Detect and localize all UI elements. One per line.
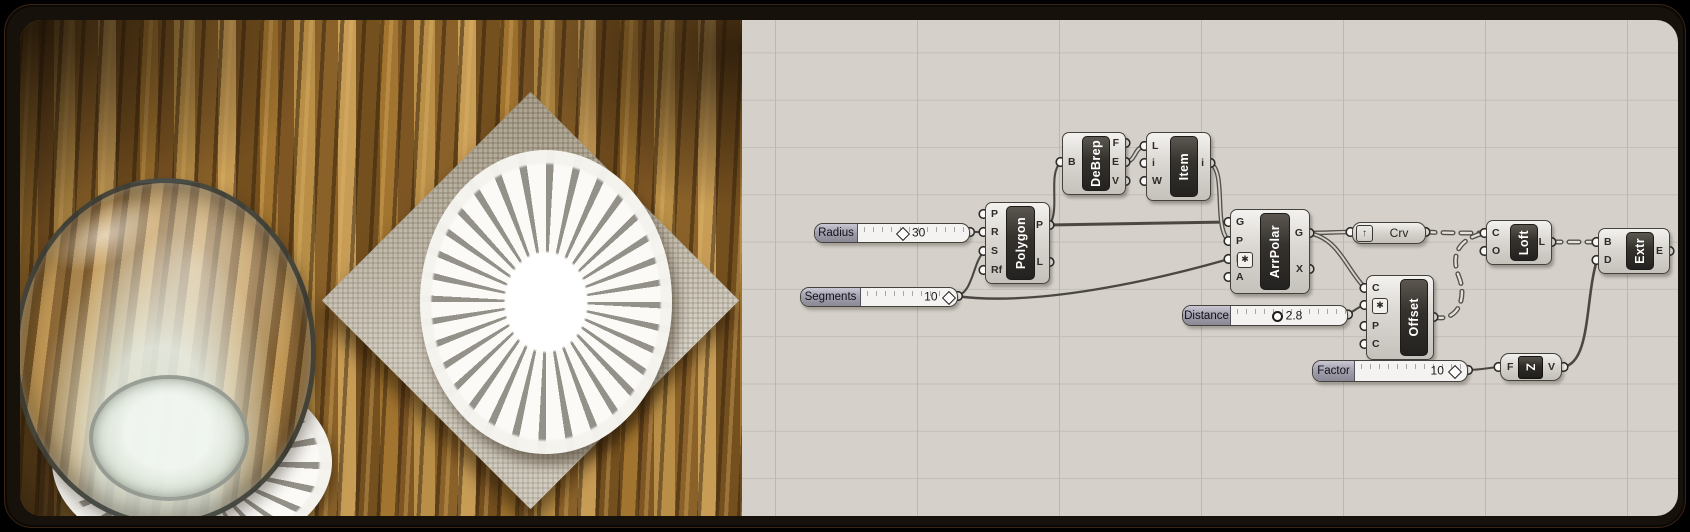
slider-track[interactable]: 2.8	[1231, 306, 1347, 325]
port-out-V[interactable]: V	[1548, 361, 1555, 373]
port-in-C[interactable]: C	[1372, 339, 1380, 350]
port-in-W[interactable]: W	[1152, 176, 1162, 187]
component-debrep[interactable]: DeBrepBFEV	[1062, 132, 1126, 195]
component-title-bar: Item	[1170, 136, 1198, 197]
port-out-E[interactable]: E	[1656, 246, 1663, 257]
component-item[interactable]: ItemLiWi	[1146, 132, 1211, 201]
slider-label: Radius	[815, 224, 858, 242]
component-title: Item	[1177, 153, 1191, 180]
port-in-P[interactable]: P	[1372, 321, 1379, 332]
port-out-G[interactable]: G	[1295, 228, 1303, 239]
port-in-G[interactable]: G	[1236, 217, 1244, 228]
component-title: Polygon	[1014, 217, 1028, 269]
port-in-O[interactable]: O	[1492, 246, 1500, 257]
slider-track[interactable]: 10	[861, 288, 957, 306]
component-polygon[interactable]: PolygonPRSRfPL	[985, 202, 1050, 284]
port-in-F[interactable]: F	[1507, 361, 1513, 373]
input-modifier-icon: ✱	[1237, 252, 1253, 268]
port-in-Rf[interactable]: Rf	[991, 265, 1002, 276]
port-out-P[interactable]: P	[1036, 220, 1043, 231]
wire-UnitZ.V-Extr.D[interactable]	[1563, 260, 1597, 367]
component-unit-z[interactable]: FZV	[1500, 353, 1562, 381]
slider-value: 10	[1431, 364, 1444, 378]
port-out-i[interactable]: i	[1201, 158, 1204, 169]
port-in-P[interactable]: P	[1236, 236, 1243, 247]
slider-value: 30	[912, 226, 925, 240]
slider-track[interactable]: 30	[858, 224, 969, 242]
component-title: ArrPolar	[1268, 225, 1282, 278]
component-title-bar: DeBrep	[1082, 136, 1110, 191]
port-in-C[interactable]: C	[1492, 228, 1500, 239]
component-title: Loft	[1517, 230, 1531, 255]
component-crv[interactable]: ↑Crv	[1352, 222, 1426, 244]
wire-layer	[0, 0, 1690, 532]
port-in-R[interactable]: R	[991, 227, 999, 238]
slider-handle[interactable]	[1448, 365, 1462, 379]
component-title: Crv	[1373, 226, 1425, 240]
slider-track[interactable]: 10	[1355, 361, 1467, 381]
port-in-C[interactable]: C	[1372, 283, 1380, 294]
component-title: DeBrep	[1089, 140, 1103, 187]
wire-Polygon.P-ArrPolar.G[interactable]	[1049, 222, 1229, 225]
slider-factor[interactable]: Factor10	[1312, 360, 1468, 382]
slider-value: 10	[924, 290, 937, 304]
slider-handle[interactable]	[1272, 311, 1283, 322]
slider-handle[interactable]	[941, 291, 955, 305]
slider-label: Segments	[801, 288, 861, 306]
port-in-L[interactable]: L	[1152, 141, 1158, 152]
port-out-L[interactable]: L	[1037, 257, 1043, 268]
component-extr[interactable]: ExtrBDE	[1598, 228, 1670, 274]
port-in-i[interactable]: i	[1152, 158, 1155, 169]
port-out-X[interactable]: X	[1296, 264, 1303, 275]
slider-label: Distance	[1183, 306, 1231, 325]
port-out-V[interactable]: V	[1112, 176, 1119, 187]
slider-segments[interactable]: Segments10	[800, 287, 958, 307]
receiver-arrow-icon: ↑	[1356, 225, 1373, 242]
component-loft[interactable]: LoftCOL	[1486, 220, 1552, 265]
port-out-L[interactable]: L	[1539, 237, 1545, 248]
wire-Polygon.P-DeBrep.B[interactable]	[1049, 162, 1061, 225]
port-in-B[interactable]: B	[1068, 157, 1076, 168]
port-in-P[interactable]: P	[991, 209, 998, 220]
input-modifier-icon: ✱	[1372, 298, 1388, 314]
slider-radius[interactable]: Radius30	[814, 223, 970, 243]
screenshot-stage: PolygonPRSRfPLDeBrepBFEVItemLiWiArrPolar…	[0, 0, 1690, 532]
component-arrpolar[interactable]: ArrPolarGPNAGX✱	[1230, 209, 1310, 294]
port-in-S[interactable]: S	[991, 246, 998, 257]
slider-handle[interactable]	[896, 227, 910, 241]
port-in-D[interactable]: D	[1604, 255, 1612, 266]
component-title-bar: Loft	[1510, 224, 1538, 261]
slider-value: 2.8	[1286, 308, 1303, 322]
component-title: Extr	[1633, 238, 1647, 264]
port-out-F[interactable]: F	[1113, 138, 1119, 149]
slider-label: Factor	[1313, 361, 1355, 381]
unit-z-icon: Z	[1518, 356, 1543, 379]
port-out-E[interactable]: E	[1112, 157, 1119, 168]
component-title-bar: Extr	[1626, 232, 1654, 270]
port-in-B[interactable]: B	[1604, 237, 1612, 248]
component-title-bar: Polygon	[1006, 206, 1035, 280]
port-in-A[interactable]: A	[1236, 272, 1244, 283]
component-title-bar: ArrPolar	[1260, 213, 1290, 290]
component-offset[interactable]: OffsetCDPCC✱	[1366, 275, 1434, 360]
unit-z-glyph: Z	[1524, 363, 1538, 370]
wire-Segments-Polygon.S[interactable]	[956, 252, 984, 296]
slider-distance[interactable]: Distance2.8	[1182, 305, 1348, 326]
port-out-C[interactable]: C	[1419, 312, 1427, 323]
